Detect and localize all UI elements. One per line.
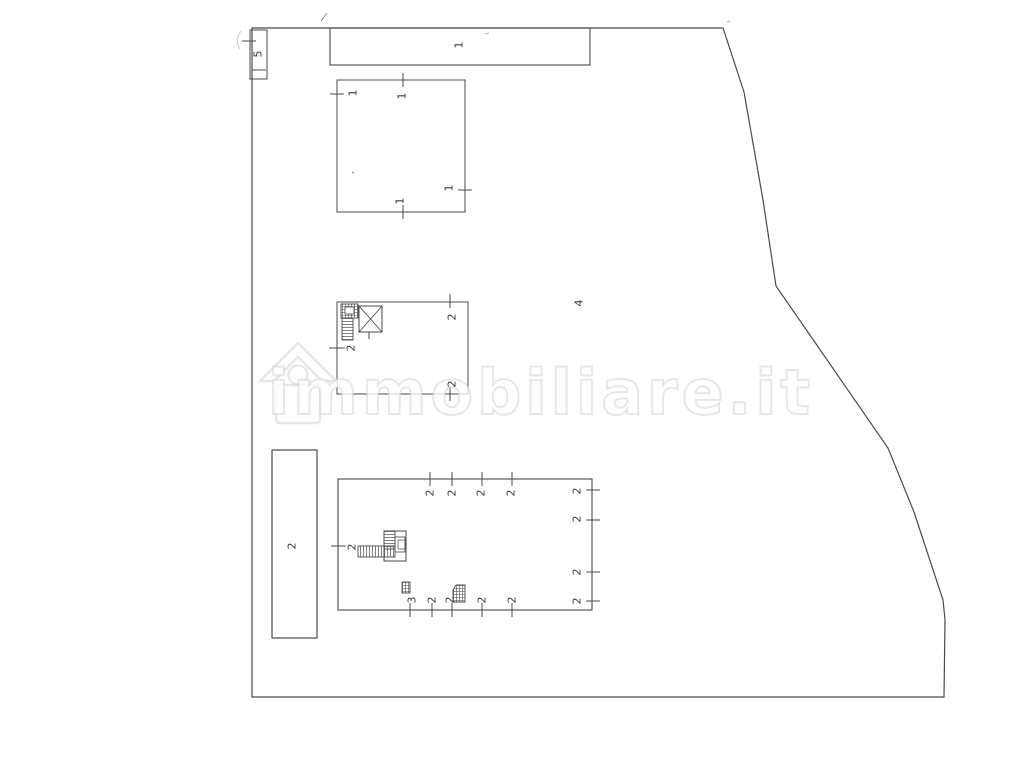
- unit-label-2: 2: [425, 490, 436, 497]
- unit-label-1: 1: [348, 90, 359, 97]
- unit-label-1: 1: [397, 93, 408, 100]
- unit-label-2: 2: [506, 490, 517, 497]
- building-1-square-outline: [337, 80, 465, 212]
- staircase-upper-flight-lower: [384, 531, 395, 549]
- unit-label-2: 2: [447, 314, 458, 321]
- block-3-hatch: [402, 582, 410, 593]
- staircase-landing-inner: [398, 540, 405, 549]
- staircase-landing-mid: [345, 307, 354, 314]
- unit-label-2: 2: [476, 490, 487, 497]
- unit-label-5: 5: [253, 51, 264, 58]
- unit-label-2: 2: [572, 516, 583, 523]
- unit-label-2: 2: [287, 543, 298, 550]
- unit-label-4: 4: [574, 300, 585, 307]
- unit-label-2: 2: [447, 381, 458, 388]
- unit-label-2: 2: [507, 597, 518, 604]
- site-boundary: [252, 28, 945, 697]
- unit-label-2: 2: [427, 597, 438, 604]
- scan-mark: [727, 21, 730, 22]
- unit-label-3: 3: [407, 597, 418, 604]
- unit-label-1: 1: [454, 42, 465, 49]
- scan-mark: [352, 172, 354, 173]
- unit-label-2: 2: [347, 544, 358, 551]
- site-plan-drawing: [0, 0, 1024, 768]
- staircase-flight-mid: [342, 318, 353, 340]
- unit-label-2: 2: [447, 490, 458, 497]
- unit-label-1: 1: [444, 185, 455, 192]
- unit-label-2: 2: [572, 598, 583, 605]
- unit-label-2: 2: [445, 597, 456, 604]
- unit-label-2: 2: [477, 597, 488, 604]
- scan-mark: [485, 33, 489, 34]
- staircase-landing-lower: [395, 537, 405, 552]
- scan-mark: [237, 31, 241, 49]
- scan-mark: [321, 13, 327, 21]
- floorplan-page: immobiliare.it 5 1 1 1 1 1 2 2 2 4 2 2 2…: [0, 0, 1024, 768]
- unit-label-2: 2: [572, 569, 583, 576]
- unit-label-2: 2: [346, 345, 357, 352]
- unit-label-1: 1: [395, 198, 406, 205]
- unit-label-2: 2: [572, 488, 583, 495]
